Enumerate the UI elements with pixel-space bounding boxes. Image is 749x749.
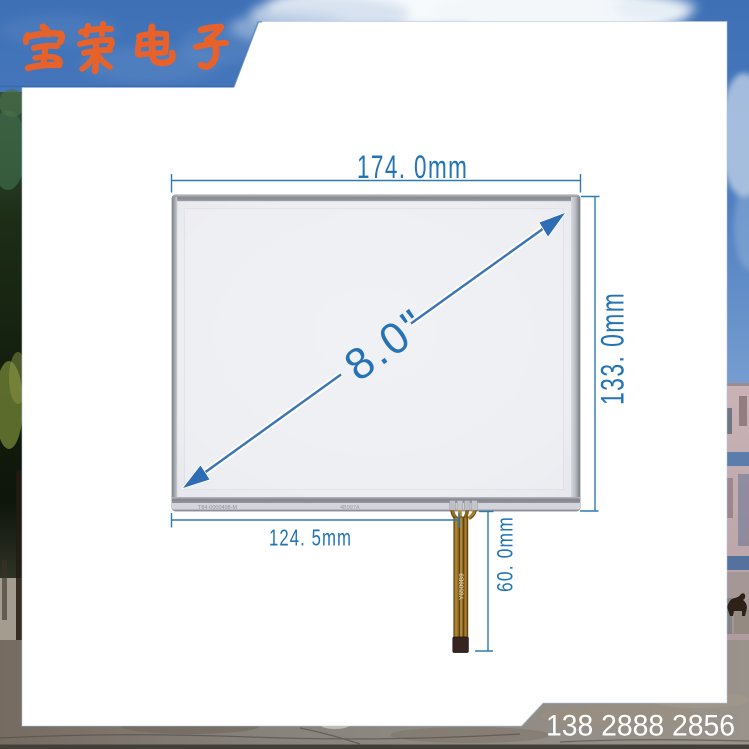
svg-text:T84-0000498-M: T84-0000498-M <box>198 505 238 511</box>
svg-text:Y6509B9: Y6509B9 <box>459 573 466 600</box>
svg-text:124. 5mm: 124. 5mm <box>269 526 352 551</box>
svg-text:133. 0mm: 133. 0mm <box>595 292 631 405</box>
svg-text:4B997A: 4B997A <box>340 505 360 511</box>
svg-text:174. 0mm: 174. 0mm <box>357 149 468 185</box>
svg-text:60. 0mm: 60. 0mm <box>494 516 518 592</box>
svg-text:138 2888 2856: 138 2888 2856 <box>546 710 735 743</box>
